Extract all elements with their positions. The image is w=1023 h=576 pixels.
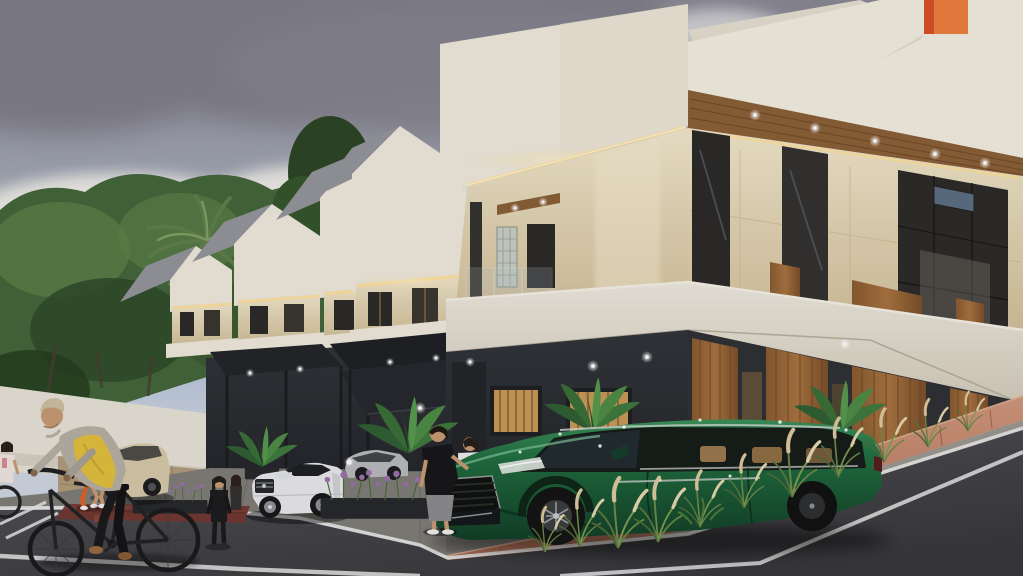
scene-canvas	[0, 0, 1023, 576]
architectural-render-scene	[0, 0, 1023, 576]
vignette	[0, 0, 1023, 576]
